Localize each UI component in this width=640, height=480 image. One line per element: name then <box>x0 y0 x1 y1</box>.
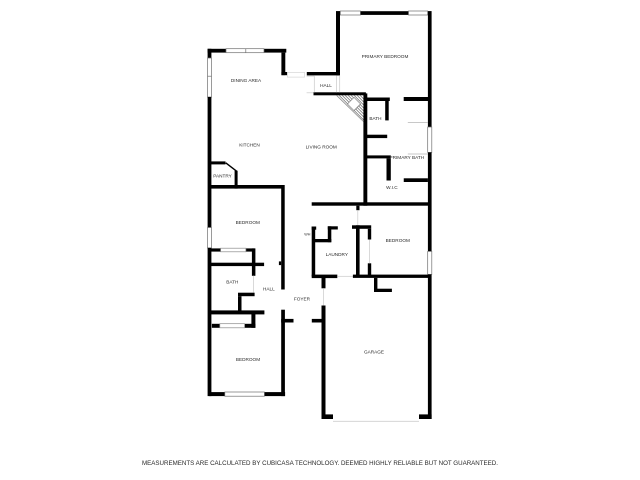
svg-text:HALL: HALL <box>263 286 275 291</box>
svg-text:BATH: BATH <box>226 280 238 285</box>
svg-text:DINING AREA: DINING AREA <box>231 78 262 83</box>
svg-text:FOYER: FOYER <box>294 296 311 301</box>
svg-text:MEASUREMENTS ARE CALCULATED BY: MEASUREMENTS ARE CALCULATED BY CUBICASA … <box>142 460 498 467</box>
svg-text:BEDROOM: BEDROOM <box>236 220 260 225</box>
svg-text:BATH: BATH <box>369 116 381 121</box>
svg-text:PRIMARY BEDROOM: PRIMARY BEDROOM <box>362 54 409 59</box>
svg-text:PANTRY: PANTRY <box>213 174 232 179</box>
svg-text:GARAGE: GARAGE <box>364 350 384 355</box>
svg-text:KITCHEN: KITCHEN <box>239 142 260 147</box>
svg-text:LIVING ROOM: LIVING ROOM <box>306 144 337 149</box>
svg-text:BEDROOM: BEDROOM <box>236 357 260 362</box>
svg-text:LAUNDRY: LAUNDRY <box>326 252 349 257</box>
svg-text:BEDROOM: BEDROOM <box>386 238 410 243</box>
svg-text:PRIMARY BATH: PRIMARY BATH <box>389 155 424 160</box>
svg-text:W.I.C: W.I.C <box>386 185 398 190</box>
svg-text:WH: WH <box>304 232 310 236</box>
svg-text:HALL: HALL <box>320 83 332 88</box>
